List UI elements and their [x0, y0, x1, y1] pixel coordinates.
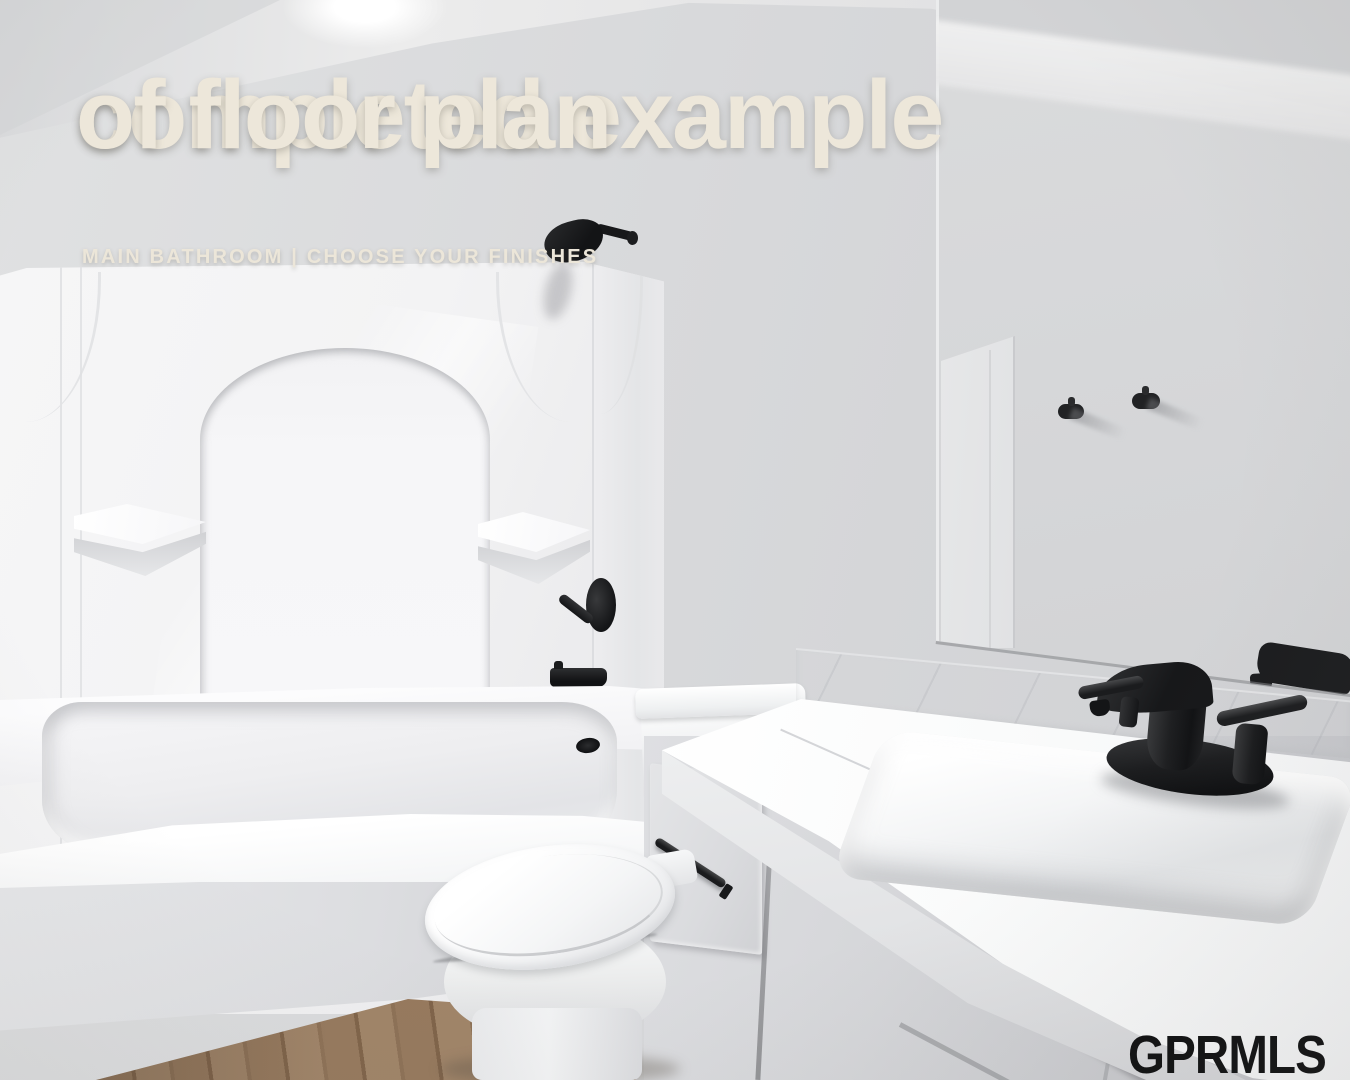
corner-shelf-right: [478, 512, 590, 588]
faucet-handle-right-stem: [1231, 723, 1268, 786]
shelf-top: [478, 512, 590, 552]
corner-shelf-left: [74, 504, 206, 580]
shower-arm-flange: [627, 231, 638, 245]
shower-valve-escutcheon: [586, 578, 616, 632]
surround-corner-fin-left: [26, 272, 101, 422]
mirror-reflection-door: [941, 336, 1015, 648]
mls-watermark: GPRMLS: [1128, 1024, 1326, 1080]
overlay-subtitle: MAIN BATHROOM | CHOOSE YOUR FINISHES: [82, 246, 598, 269]
towel-hook-shadow: [1146, 398, 1204, 431]
faucet-handle-left-stem: [1118, 696, 1139, 728]
toilet-base: [472, 1008, 642, 1080]
mirror-reflection-door-casing: [989, 350, 991, 648]
tub-spout: [550, 668, 607, 687]
arched-back-panel: [200, 348, 490, 700]
bathroom-photo: completed example of floor plan MAIN BAT…: [0, 0, 1350, 1080]
recessed-light: [255, 0, 475, 62]
vanity-mirror: [936, 0, 1350, 704]
shelf-top: [74, 504, 206, 544]
overlay-title-line2: of floor plan: [76, 76, 610, 155]
towel-hook-shadow: [1069, 408, 1127, 441]
